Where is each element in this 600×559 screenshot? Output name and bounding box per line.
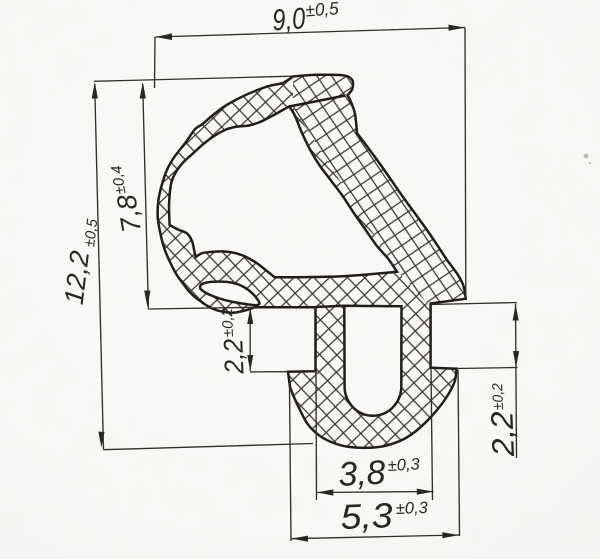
svg-text:±0,5: ±0,5 bbox=[81, 218, 101, 248]
svg-text:3,8: 3,8 bbox=[337, 454, 386, 494]
svg-text:7,8: 7,8 bbox=[111, 193, 147, 235]
svg-text:5,3: 5,3 bbox=[340, 496, 394, 537]
svg-text:±0,5: ±0,5 bbox=[305, 0, 340, 20]
svg-text:9,0: 9,0 bbox=[271, 2, 306, 37]
svg-text:2,2: 2,2 bbox=[484, 411, 521, 458]
svg-text:±0,2: ±0,2 bbox=[219, 307, 237, 337]
svg-text:±0,3: ±0,3 bbox=[396, 499, 429, 518]
svg-text:2,2: 2,2 bbox=[218, 338, 249, 375]
svg-text:±0,3: ±0,3 bbox=[387, 455, 421, 475]
svg-text:±0,2: ±0,2 bbox=[490, 383, 507, 411]
